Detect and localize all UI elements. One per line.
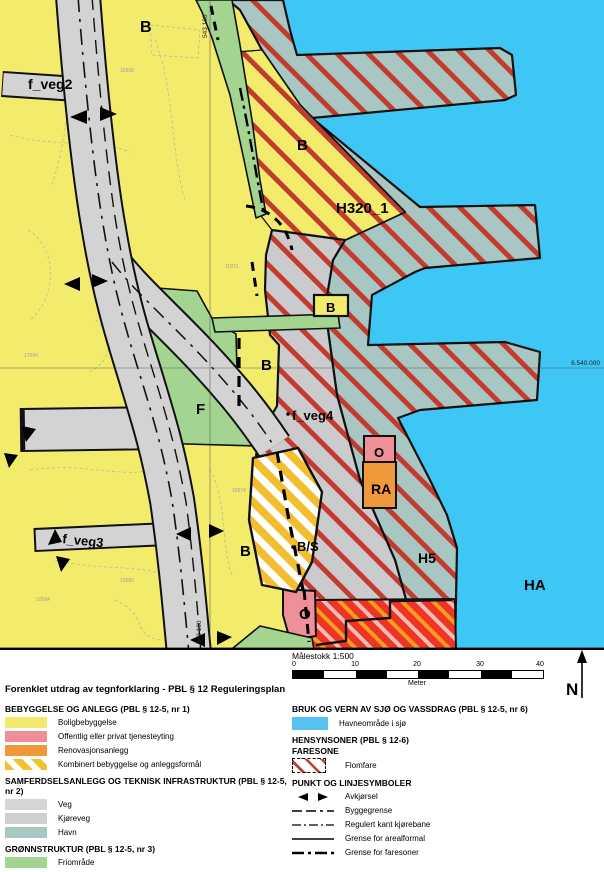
building-limit-symbol <box>292 808 334 814</box>
area-label-h5: H5 <box>418 550 436 566</box>
north-label: N <box>566 680 578 699</box>
legend-title: Forenklet utdrag av tegnforklaring - PBL… <box>5 684 285 695</box>
north-arrow-head <box>577 650 587 663</box>
flood-hazard-swatch <box>292 758 326 773</box>
fveg4-point <box>286 412 290 416</box>
legend-item: Friområde <box>5 857 290 869</box>
legend-item-label: Renovasjonsanlegg <box>58 746 128 755</box>
area-label-o2: O <box>299 606 311 623</box>
legend-item: Kjøreveg <box>5 813 290 825</box>
legend-item-label: Veg <box>58 800 72 809</box>
swatch-boligbebyggelse <box>5 717 47 728</box>
scale-unit: Meter <box>292 680 542 687</box>
legend-item: Avkjørsel <box>292 791 602 803</box>
legend-item: Byggegrense <box>292 805 602 817</box>
scale-ticks: 0 10 20 30 40 <box>292 661 548 670</box>
legend-heading: SAMFERDSELSANLEGG OG TEKNISK INFRASTRUKT… <box>5 776 290 797</box>
legend-heading: HENSYNSONER (PBL § 12-6) <box>292 735 602 746</box>
legend-item-label: Kjøreveg <box>58 814 90 823</box>
scale-title: Målestokk 1:500 <box>292 651 548 661</box>
legend-item-label: Havn <box>58 828 77 837</box>
legend-item-label: Avkjørsel <box>345 792 378 801</box>
land-use-boundary-symbol <box>292 836 334 842</box>
legend-heading: GRØNNSTRUKTUR (PBL § 12-5, nr 3) <box>5 844 290 855</box>
legend-item-label: Grense for arealformal <box>345 834 425 843</box>
swatch-offentlig <box>5 731 47 742</box>
scale-block: Målestokk 1:500 0 10 20 30 40 Meter <box>292 651 548 687</box>
hazard-boundary-symbol <box>292 850 334 856</box>
area-label-b2: B <box>297 137 308 154</box>
legend-item-label: Havneområde i sjø <box>339 719 406 728</box>
legend-item-label: Flomfare <box>345 761 377 770</box>
legend-item: Kombinert bebyggelse og anleggsformål <box>5 759 290 771</box>
easting-label-top: 543 100 <box>202 14 209 38</box>
legend-item: Boligbebyggelse <box>5 717 290 729</box>
legend-item: Offentlig eller privat tjenesteyting <box>5 731 290 743</box>
legend-item-label: Offentlig eller privat tjenesteyting <box>58 732 174 741</box>
north-arrow: N <box>560 648 600 704</box>
swatch-kjoreveg <box>5 813 47 824</box>
legend-item-label: Regulert kant kjørebane <box>345 820 430 829</box>
scale-tick: 30 <box>476 661 484 668</box>
scale-tick: 0 <box>292 661 296 668</box>
area-label-fveg2: f_veg2 <box>28 76 73 92</box>
parcel-number: 11871 <box>225 264 239 270</box>
zoning-plan-page: B f_veg2 B H320_1 B B F f_veg4 O RA f_ve… <box>0 0 604 872</box>
parcel-number: 10958 <box>120 68 134 74</box>
bs-point <box>291 545 295 549</box>
legend-heading: BRUK OG VERN AV SJØ OG VASSDRAG (PBL § 1… <box>292 704 602 715</box>
easting-label-bottom: 543 100 <box>196 620 203 644</box>
area-label-f: F <box>196 401 205 418</box>
legend-item: Grense for faresoner <box>292 847 602 859</box>
legend-item-label: Boligbebyggelse <box>58 718 117 727</box>
swatch-renovasjonsanlegg <box>5 745 47 756</box>
area-label-b5: B <box>240 543 251 560</box>
scale-tick: 20 <box>413 661 421 668</box>
legend-subheading: FARESONE <box>292 746 602 756</box>
parcel-number: 13580 <box>120 578 134 584</box>
area-label-b3: B <box>326 300 335 315</box>
legend-item-label: Grense for faresoner <box>345 848 419 857</box>
zoning-map: B f_veg2 B H320_1 B B F f_veg4 O RA f_ve… <box>0 0 604 650</box>
parcel-number: 17094 <box>24 353 38 359</box>
area-label-b1: B <box>140 19 152 36</box>
area-label-bs: B/S <box>297 539 319 554</box>
legend-item-label: Friområde <box>58 858 94 867</box>
parcel-number: 10584 <box>36 597 50 603</box>
area-label-ra: RA <box>371 481 391 497</box>
legend-item: Renovasjonsanlegg <box>5 745 290 757</box>
legend-heading: PUNKT OG LINJESYMBOLER <box>292 778 602 789</box>
area-label-ha: HA <box>524 577 546 594</box>
scale-tick: 10 <box>351 661 359 668</box>
swatch-kombinert <box>5 759 47 770</box>
area-label-o1: O <box>374 445 384 460</box>
carriageway-edge-symbol <box>292 822 334 828</box>
swatch-friomrade <box>5 857 47 868</box>
legend-item: Flomfare <box>292 758 602 773</box>
legend-item-label: Byggegrense <box>345 806 392 815</box>
scale-tick: 40 <box>536 661 544 668</box>
legend-item: Veg <box>5 799 290 811</box>
swatch-veg <box>5 799 47 810</box>
legend-left-column: BEBYGGELSE OG ANLEGG (PBL § 12-5, nr 1) … <box>5 699 290 871</box>
swatch-havn <box>5 827 47 838</box>
legend-heading: BEBYGGELSE OG ANLEGG (PBL § 12-5, nr 1) <box>5 704 290 715</box>
scale-bar <box>292 670 544 679</box>
area-label-h320: H320_1 <box>336 200 389 217</box>
legend-right-column: BRUK OG VERN AV SJØ OG VASSDRAG (PBL § 1… <box>292 699 602 861</box>
legend-item-label: Kombinert bebyggelse og anleggsformål <box>58 760 201 769</box>
northing-label: 6.540.000 <box>571 360 600 367</box>
legend-item: Grense for arealformal <box>292 833 602 845</box>
legend-item: Havneområde i sjø <box>292 717 602 730</box>
legend-item: Regulert kant kjørebane <box>292 819 602 831</box>
swatch-havneomrade <box>292 717 328 730</box>
legend-item: Havn <box>5 827 290 839</box>
parcel-number: 10974 <box>232 488 246 494</box>
area-label-b4: B <box>261 357 272 374</box>
area-label-fveg4: f_veg4 <box>292 408 334 423</box>
driveway-symbol <box>292 792 334 802</box>
